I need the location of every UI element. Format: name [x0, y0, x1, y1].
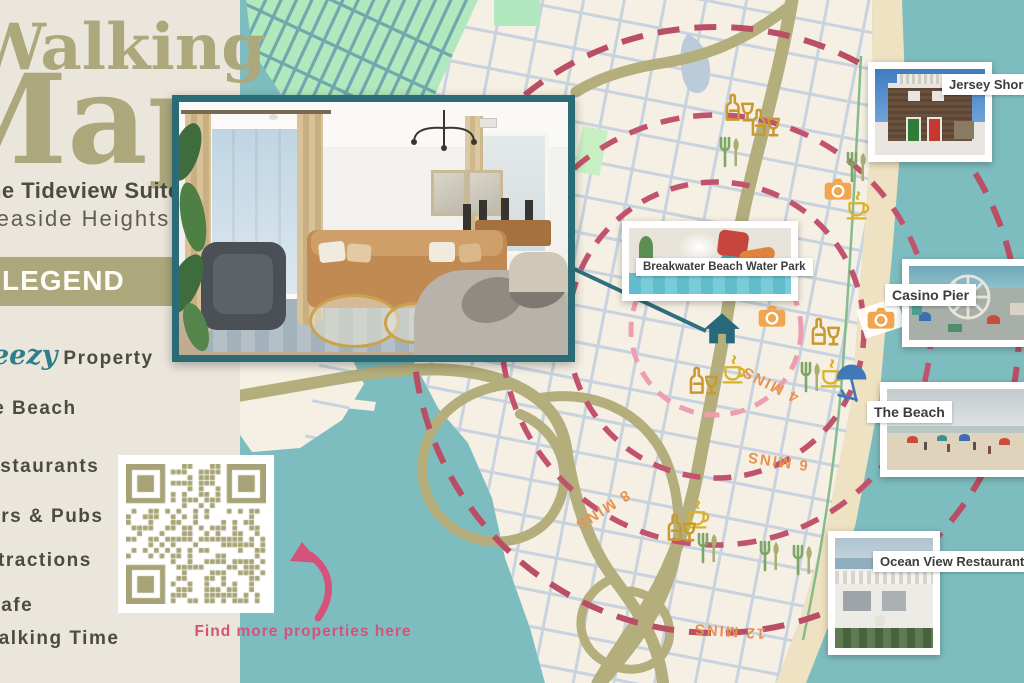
walking-map-flyer: { "page": {"width": 1024, "height": 683}… [0, 0, 1024, 683]
legend-header: LEGEND [0, 257, 180, 306]
pillow [318, 241, 346, 264]
callout-label: Jersey Shore H [942, 74, 1024, 95]
qr-panel [118, 455, 274, 613]
callout-label: Breakwater Beach Water Park [636, 258, 813, 276]
property-name: The Tideview Suites [0, 178, 193, 204]
property-interior-photo [172, 95, 575, 362]
ceiling-light [269, 114, 278, 120]
callout-label: Casino Pier [885, 284, 976, 306]
legend-item-beach: The Beach [0, 398, 77, 420]
callout-casino-pier: Casino Pier [902, 259, 1024, 347]
legend-item-property: eezyProperty [0, 340, 154, 371]
park-patch [494, 0, 540, 26]
chaise-back [509, 252, 568, 292]
ceiling-vent [479, 118, 497, 128]
legend-item-restaurants: Restaurants [0, 456, 99, 478]
legend-item-attractions: Attractions [0, 550, 92, 572]
wall-art [431, 170, 467, 216]
qr-caption: Find more properties here [188, 623, 418, 641]
callout-jersey-shore-house: Jersey Shore H [868, 62, 992, 162]
callout-ocean-view-restaurant: Ocean View Restaurant [828, 531, 940, 655]
pillow [458, 243, 481, 263]
callout-the-beach: The Beach [880, 382, 1024, 477]
property-location: Seaside Heights [0, 206, 170, 232]
qr-code [126, 464, 266, 604]
callout-label: The Beach [867, 401, 952, 423]
armchair-cushion [213, 254, 273, 314]
curtain-rod [181, 110, 331, 114]
legend-item-walking-time: Walking Time [0, 628, 119, 650]
legend-item-cafe: Cafe [0, 595, 33, 617]
callout-label: Ocean View Restaurant [873, 551, 1024, 572]
legend-item-bars-pubs: Bars & Pubs [0, 506, 103, 528]
callout-breakwater-beach: Breakwater Beach Water Park [622, 221, 798, 301]
arrow-icon [268, 535, 338, 630]
brand-logo: eezy [0, 340, 57, 371]
pillow [429, 242, 455, 262]
pillow [346, 243, 371, 263]
